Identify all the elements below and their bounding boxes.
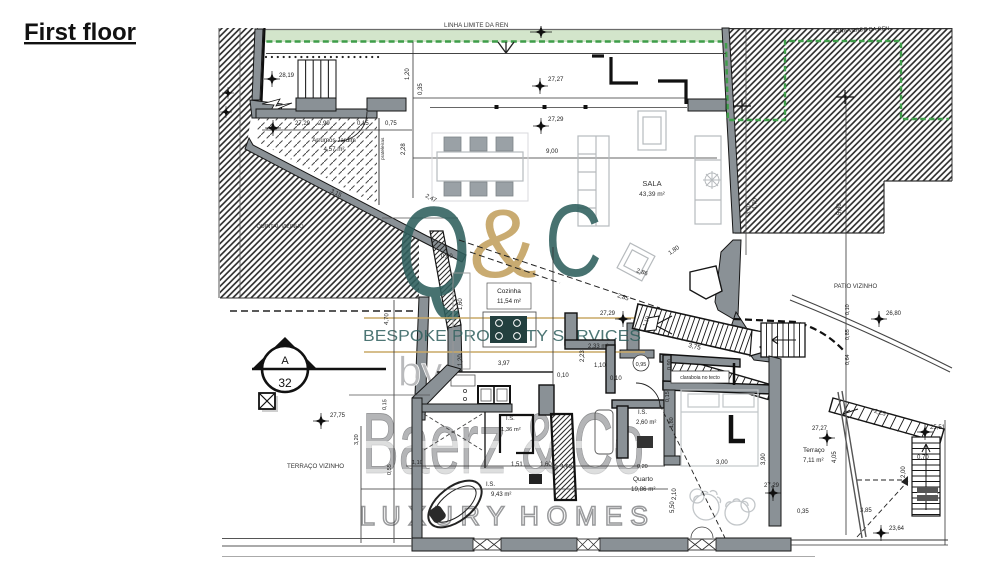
svg-text:0,60: 0,60 bbox=[441, 254, 453, 260]
svg-text:27,29: 27,29 bbox=[295, 121, 311, 127]
svg-text:27,29: 27,29 bbox=[600, 311, 616, 317]
svg-text:Arrumos Jardim: Arrumos Jardim bbox=[312, 137, 356, 144]
svg-text:1,36 m²: 1,36 m² bbox=[501, 427, 521, 433]
svg-text:0,10: 0,10 bbox=[557, 373, 569, 379]
svg-text:5,80: 5,80 bbox=[837, 203, 843, 215]
svg-text:0,15: 0,15 bbox=[665, 391, 671, 402]
svg-text:1,60: 1,60 bbox=[561, 464, 572, 470]
svg-text:I.S.: I.S. bbox=[486, 482, 495, 488]
svg-text:27,29: 27,29 bbox=[764, 483, 780, 489]
svg-text:27,27: 27,27 bbox=[548, 76, 564, 83]
svg-text:25,51: 25,51 bbox=[930, 425, 946, 431]
svg-text:0,85: 0,85 bbox=[845, 329, 851, 340]
svg-text:0,20: 0,20 bbox=[637, 464, 648, 470]
svg-text:2,33 m²: 2,33 m² bbox=[588, 344, 608, 350]
svg-text:0,35: 0,35 bbox=[418, 83, 424, 95]
svg-text:3,97: 3,97 bbox=[498, 361, 510, 367]
svg-text:7,11 m²: 7,11 m² bbox=[803, 457, 824, 464]
svg-text:3,00: 3,00 bbox=[716, 460, 728, 466]
svg-text:3,90: 3,90 bbox=[761, 453, 767, 465]
svg-text:I.S.: I.S. bbox=[506, 416, 515, 422]
svg-text:11,54 m²: 11,54 m² bbox=[497, 298, 521, 305]
svg-text:TERRAÇO VIZINHO: TERRAÇO VIZINHO bbox=[287, 463, 344, 470]
svg-text:2,99: 2,99 bbox=[318, 121, 330, 127]
svg-text:2,60 m²: 2,60 m² bbox=[636, 420, 656, 426]
svg-text:3,20: 3,20 bbox=[354, 434, 360, 445]
svg-text:1,20: 1,20 bbox=[458, 354, 464, 366]
svg-text:0,64: 0,64 bbox=[845, 354, 851, 365]
svg-text:26,80: 26,80 bbox=[886, 311, 902, 317]
svg-text:A: A bbox=[281, 355, 289, 367]
svg-text:1,10: 1,10 bbox=[594, 363, 606, 369]
svg-text:1,60: 1,60 bbox=[458, 298, 464, 310]
svg-text:9,00: 9,00 bbox=[546, 148, 559, 155]
svg-text:0,75: 0,75 bbox=[385, 121, 397, 127]
svg-text:43,39 m²: 43,39 m² bbox=[639, 191, 665, 198]
svg-text:0,35: 0,35 bbox=[797, 509, 809, 515]
svg-text:2,10: 2,10 bbox=[672, 488, 678, 500]
svg-text:QUINTAL VIZINHO: QUINTAL VIZINHO bbox=[256, 224, 304, 230]
svg-text:5,50: 5,50 bbox=[670, 501, 676, 513]
svg-text:First floor: First floor bbox=[24, 19, 136, 46]
svg-text:0,15: 0,15 bbox=[382, 399, 388, 410]
svg-text:2,00: 2,00 bbox=[901, 466, 907, 478]
svg-text:Quarto: Quarto bbox=[633, 476, 653, 483]
svg-text:PATIO VIZINHO: PATIO VIZINHO bbox=[834, 284, 877, 290]
svg-text:27,29: 27,29 bbox=[548, 116, 564, 123]
svg-text:0,10: 0,10 bbox=[845, 304, 851, 315]
svg-text:0,70: 0,70 bbox=[917, 455, 929, 461]
svg-text:23,64: 23,64 bbox=[889, 526, 905, 532]
svg-text:I.S.: I.S. bbox=[638, 410, 647, 416]
svg-text:claraboia no tecto: claraboia no tecto bbox=[680, 375, 720, 381]
svg-text:1,10: 1,10 bbox=[412, 460, 423, 466]
svg-text:32: 32 bbox=[278, 376, 292, 390]
svg-text:1,51: 1,51 bbox=[511, 462, 523, 468]
svg-text:4,70: 4,70 bbox=[752, 197, 759, 210]
svg-text:Terraço: Terraço bbox=[803, 447, 825, 454]
svg-text:4,05: 4,05 bbox=[832, 451, 838, 463]
svg-text:1,20: 1,20 bbox=[405, 68, 411, 80]
svg-text:L U X U R Y H O M E S: L U X U R Y H O M E S bbox=[360, 501, 648, 531]
svg-text:27,75: 27,75 bbox=[330, 413, 346, 419]
svg-text:2,23: 2,23 bbox=[580, 350, 586, 362]
svg-text:1,80: 1,80 bbox=[669, 417, 675, 428]
svg-text:0,10: 0,10 bbox=[610, 376, 622, 382]
svg-text:9,43 m²: 9,43 m² bbox=[491, 492, 511, 498]
svg-text:4,70: 4,70 bbox=[384, 313, 390, 326]
svg-text:0,95: 0,95 bbox=[636, 362, 647, 368]
svg-text:19,86 m²: 19,86 m² bbox=[631, 486, 655, 493]
svg-text:SALA: SALA bbox=[642, 179, 661, 188]
svg-text:28,19: 28,19 bbox=[279, 73, 295, 79]
svg-text:27,27: 27,27 bbox=[812, 426, 828, 432]
svg-text:0,15: 0,15 bbox=[357, 121, 369, 127]
svg-text:1,60: 1,60 bbox=[540, 462, 552, 468]
svg-text:&: & bbox=[469, 189, 537, 298]
svg-text:4,57 m²: 4,57 m² bbox=[324, 146, 345, 153]
svg-text:0,90: 0,90 bbox=[667, 359, 673, 370]
svg-text:Cozinha: Cozinha bbox=[497, 288, 521, 295]
svg-text:0,55: 0,55 bbox=[387, 464, 393, 475]
svg-text:2,28: 2,28 bbox=[401, 143, 407, 155]
svg-text:prateleiras: prateleiras bbox=[380, 137, 386, 160]
svg-text:LINHA LIMITE DA REN: LINHA LIMITE DA REN bbox=[444, 22, 508, 29]
